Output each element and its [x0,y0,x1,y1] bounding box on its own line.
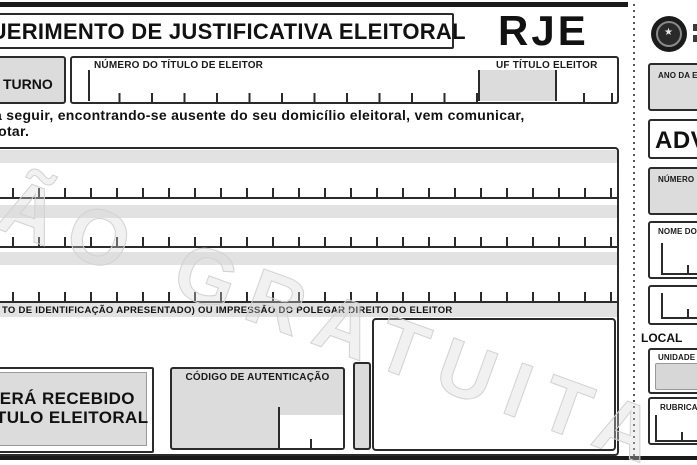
uf-comb-field [557,93,615,102]
codigo-autenticacao-box: CÓDIGO DE AUTENTICAÇÃO [170,367,345,450]
rje-form-scan: ÇÃO GRATUITA REQUERIMENTO DE JUSTIFICATI… [0,0,697,465]
cut-line [633,4,635,456]
field-rule [0,197,617,199]
comb-tick [310,439,312,448]
turno-box: º TURNO [0,56,66,104]
stub-uf-box: UNIDADE DA FEDERAÇÃO [648,348,697,394]
stub-numero-box: NÚMERO DO TÍTULO DE ELEITOR [648,167,697,215]
comb-field-row2 [0,237,617,246]
ano-eleicao-box: ANO DA ELEIÇÃO [648,63,697,111]
turno-label: º TURNO [0,76,53,92]
codigo-autenticacao-label: CÓDIGO DE AUTENTICAÇÃO [172,372,343,383]
uf-shaded-cell [655,363,697,390]
form-title: REQUERIMENTO DE JUSTIFICATIVA ELEITORAL [0,19,466,45]
titulo-eleitor-box: NÚMERO DO TÍTULO DE ELEITOR UF TÍTULO EL… [70,56,619,104]
fingerprint-box [372,318,616,451]
advertencia-title: ADVERTÊNCIA [655,127,697,155]
main-fields-box: TO DE IDENTIFICAÇÃO APRESENTADO) OU IMPR… [0,147,619,456]
star-icon: ★ [664,27,673,38]
field-divider [278,407,280,448]
stub-uf-label: UNIDADE DA FEDERAÇÃO [658,353,697,362]
bottom-rule [0,456,697,460]
local-heading: LOCAL [641,331,682,345]
comb-field-row1 [0,188,617,197]
field-label-strip [0,205,617,218]
stub-extra-field-box [648,285,697,325]
field-rule [661,273,697,275]
stub-rubrica-box: RUBRICA DO SERVIDOR [648,397,697,445]
recebido-text-line1: SERÁ RECEBIDO [0,389,135,409]
advertencia-box: ADVERTÊNCIA [648,119,697,159]
stub-header-text-cropped [693,24,697,31]
field-rule [0,246,617,248]
recebido-text-line2: TÍTULO ELEITORAL [0,408,149,428]
uf-shaded-cell [478,70,555,101]
field-rule [661,317,697,319]
titulo-comb-field [88,93,480,102]
comb-field [663,265,697,273]
stub-header-text-cropped [693,35,697,42]
narrow-strip-box [353,362,371,450]
comb-field [663,309,697,317]
comb-field-row3 [0,292,617,301]
stub-numero-label: NÚMERO DO TÍTULO DE ELEITOR [658,175,697,184]
declaration-text-line1: a seguir, encontrando-se ausente do seu … [0,107,525,123]
field-divider [478,70,480,101]
field-label-strip [0,150,617,163]
ano-eleicao-label: ANO DA ELEIÇÃO [658,71,697,80]
form-code: RJE [498,7,589,55]
field-label-strip [0,252,617,265]
signature-label-strip: TO DE IDENTIFICAÇÃO APRESENTADO) OU IMPR… [0,303,617,317]
numero-titulo-label: NÚMERO DO TÍTULO DE ELEITOR [94,60,263,71]
field-rule [655,440,697,442]
signature-strip-label: TO DE IDENTIFICAÇÃO APRESENTADO) OU IMPR… [2,305,453,316]
stub-rubrica-label: RUBRICA DO SERVIDOR [660,403,697,412]
comb-field [657,432,697,440]
stub-nome-label: NOME DO ELEITOR [658,227,697,236]
declaration-text-line2: votar. [0,123,29,139]
stub-nome-box: NOME DO ELEITOR [648,221,697,279]
